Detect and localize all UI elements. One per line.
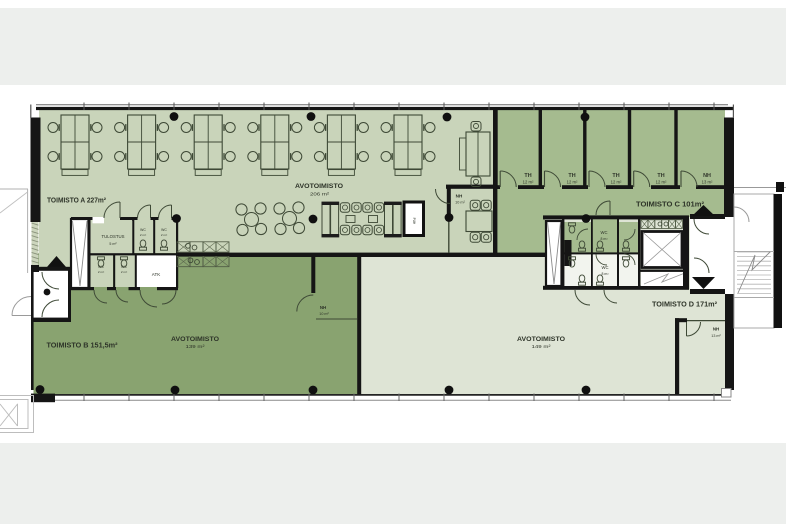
svg-text:AVOTOIMISTO: AVOTOIMISTO (517, 336, 565, 343)
svg-text:12 m²: 12 m² (611, 180, 622, 185)
svg-text:NH: NH (320, 305, 326, 310)
svg-text:12 m²: 12 m² (567, 180, 578, 185)
svg-text:TULOSTUS: TULOSTUS (102, 234, 125, 239)
svg-text:TH: TH (657, 173, 664, 179)
svg-text:TH: TH (568, 173, 575, 179)
svg-text:WC: WC (601, 230, 608, 235)
svg-text:WC: WC (161, 228, 167, 232)
svg-text:2 m²: 2 m² (121, 270, 127, 274)
svg-text:2 m²: 2 m² (98, 270, 104, 274)
svg-text:2 m²: 2 m² (140, 233, 146, 237)
svg-text:5 m²: 5 m² (109, 242, 117, 246)
svg-text:NH: NH (456, 194, 463, 199)
svg-text:TH: TH (524, 173, 531, 179)
svg-text:10 m²: 10 m² (455, 201, 465, 205)
svg-text:139 m²: 139 m² (186, 344, 206, 349)
svg-text:13 m²: 13 m² (711, 334, 721, 338)
svg-text:NH: NH (713, 327, 719, 332)
svg-text:TH: TH (612, 173, 619, 179)
svg-text:12 m²: 12 m² (656, 180, 667, 185)
svg-text:NH: NH (703, 173, 711, 179)
svg-text:10 m²: 10 m² (319, 312, 329, 316)
svg-text:WC: WC (602, 265, 609, 270)
svg-text:TOIMISTO A 227m²: TOIMISTO A 227m² (47, 196, 107, 205)
svg-text:2 m²: 2 m² (161, 233, 167, 237)
svg-text:PUH: PUH (412, 218, 416, 225)
svg-text:AVOTOIMISTO: AVOTOIMISTO (295, 183, 343, 190)
svg-text:TOIMISTO C 101m²: TOIMISTO C 101m² (636, 200, 705, 209)
svg-text:TOIMISTO B 151,5m²: TOIMISTO B 151,5m² (47, 341, 119, 350)
svg-text:8 m²: 8 m² (602, 272, 610, 276)
svg-text:206 m²: 206 m² (310, 192, 330, 197)
svg-text:12 m²: 12 m² (523, 180, 534, 185)
svg-text:13 m²: 13 m² (702, 180, 713, 185)
svg-text:AVOTOIMISTO: AVOTOIMISTO (171, 336, 219, 343)
svg-text:149 m²: 149 m² (532, 344, 552, 349)
svg-text:ATK: ATK (152, 272, 160, 277)
svg-text:WC: WC (140, 228, 146, 232)
svg-text:8 m²: 8 m² (601, 237, 609, 241)
svg-text:TOIMISTO D 171m²: TOIMISTO D 171m² (652, 300, 718, 309)
